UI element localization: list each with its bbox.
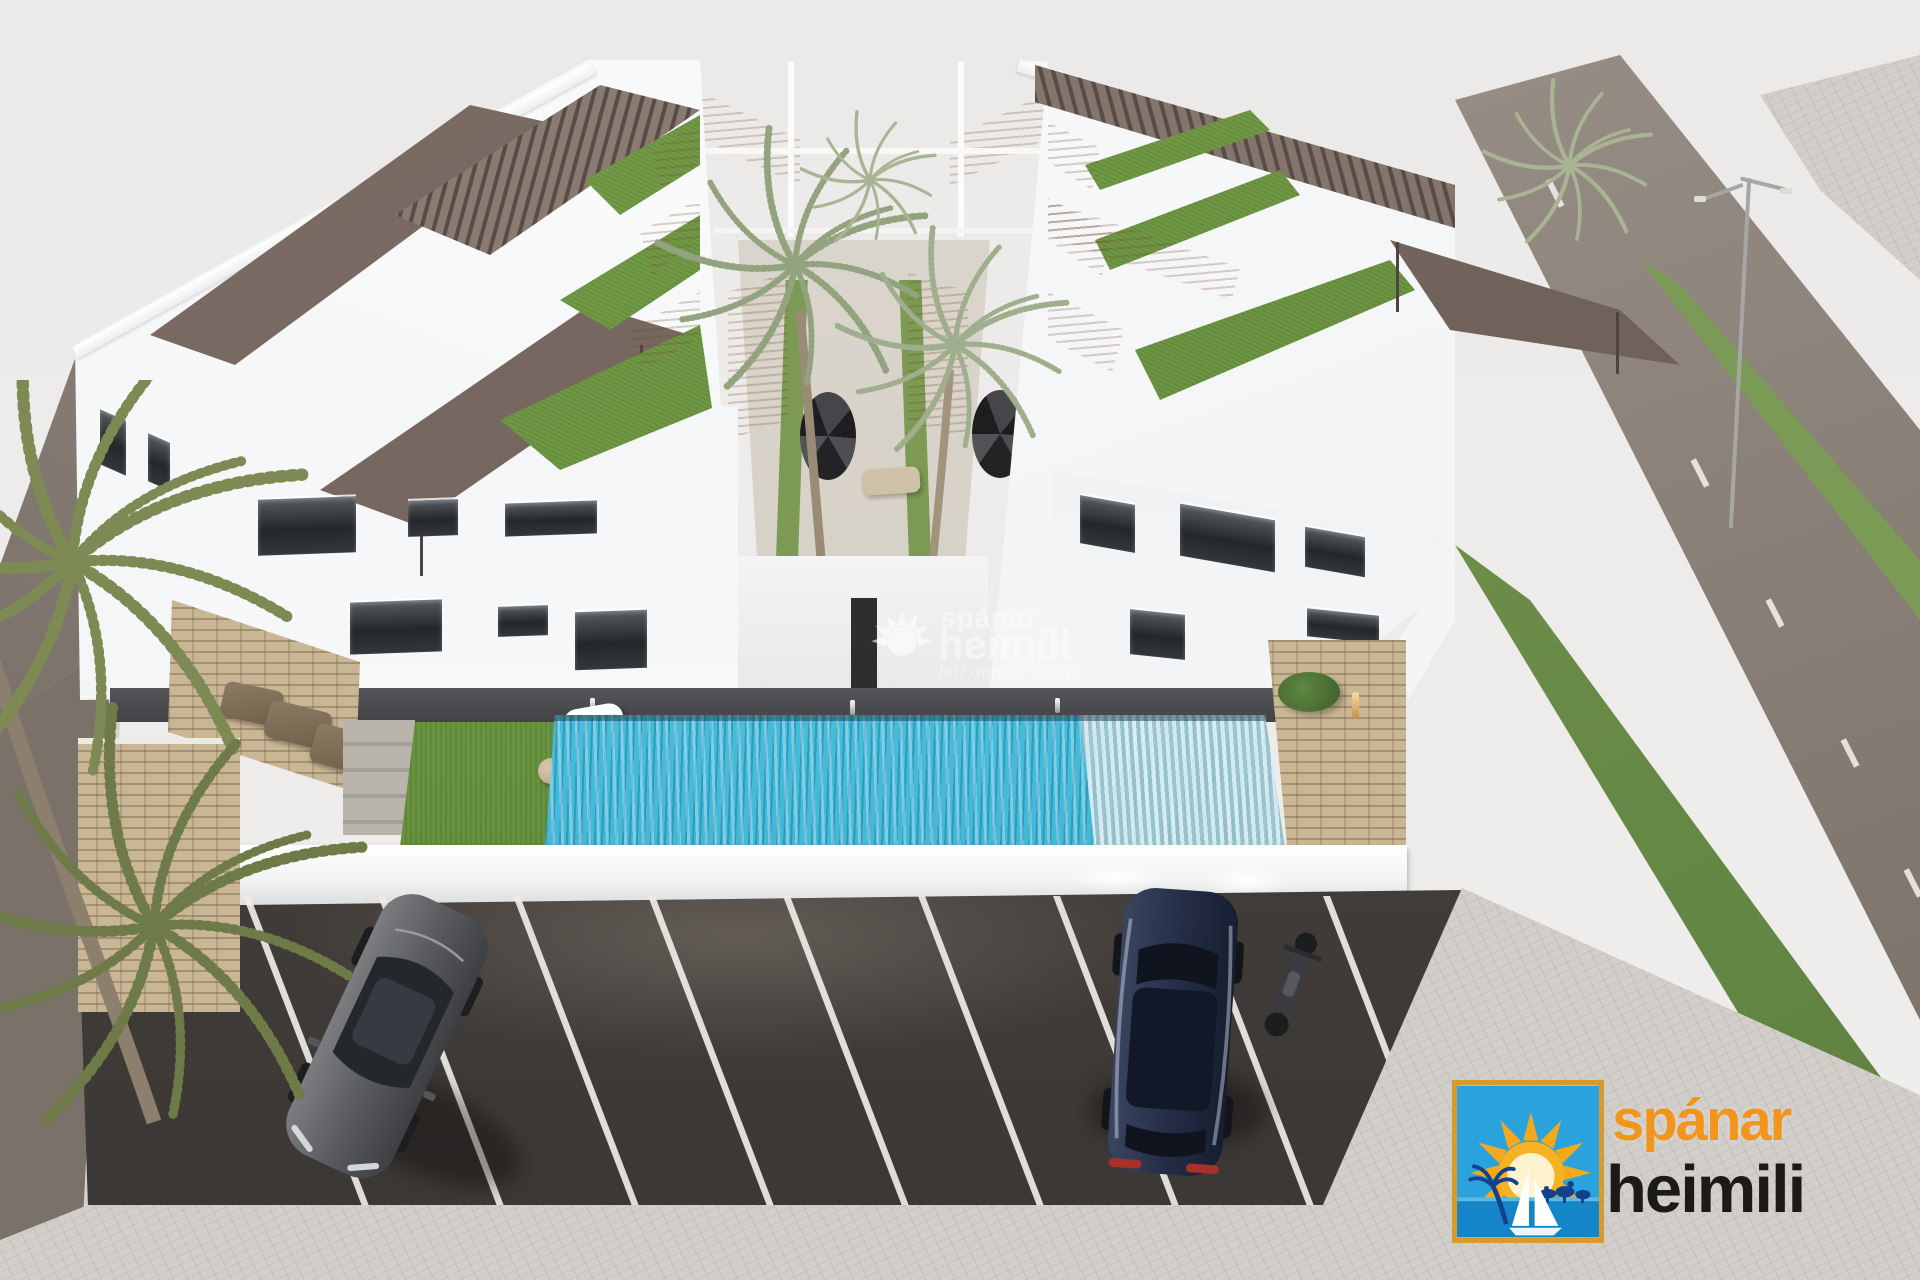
palm-canopy-right [1482,78,1657,253]
pergola-leg [1616,312,1619,374]
pergola-leg [1396,242,1399,312]
ground-floor-door [575,610,647,671]
watermark-tagline: þitt annað heimili [938,664,1138,680]
street-lamp-head [1780,188,1792,194]
bollard-light [850,700,855,715]
watermark: spánar heimili þitt annað heimili [862,594,1102,686]
logo-sun-beach-sailboat-icon [1457,1085,1599,1238]
bollard-light [1055,698,1060,713]
logo-text-spanar: spánar [1612,1092,1790,1150]
palm-canopy-courtyard [800,110,940,250]
ground-floor-window [1130,609,1185,660]
palm-canopy-courtyard [835,225,1075,465]
facade-window [505,500,597,536]
brand-logo [1452,1080,1604,1243]
street-lamp-head [1694,196,1706,202]
palm-tree-foreground [0,380,460,1140]
stone-wall-lamp [1352,692,1359,718]
stone-wall-bush [1278,672,1340,712]
watermark-brand-bottom: heimili [938,624,1071,666]
facade-window [1080,495,1135,553]
architectural-render: spánar heimili þitt annað heimili [0,0,1920,1280]
logo-text-heimili: heimili [1606,1156,1804,1223]
car-navy [1088,877,1259,1187]
ground-floor-window [498,605,548,637]
watermark-sun-icon [870,602,934,670]
